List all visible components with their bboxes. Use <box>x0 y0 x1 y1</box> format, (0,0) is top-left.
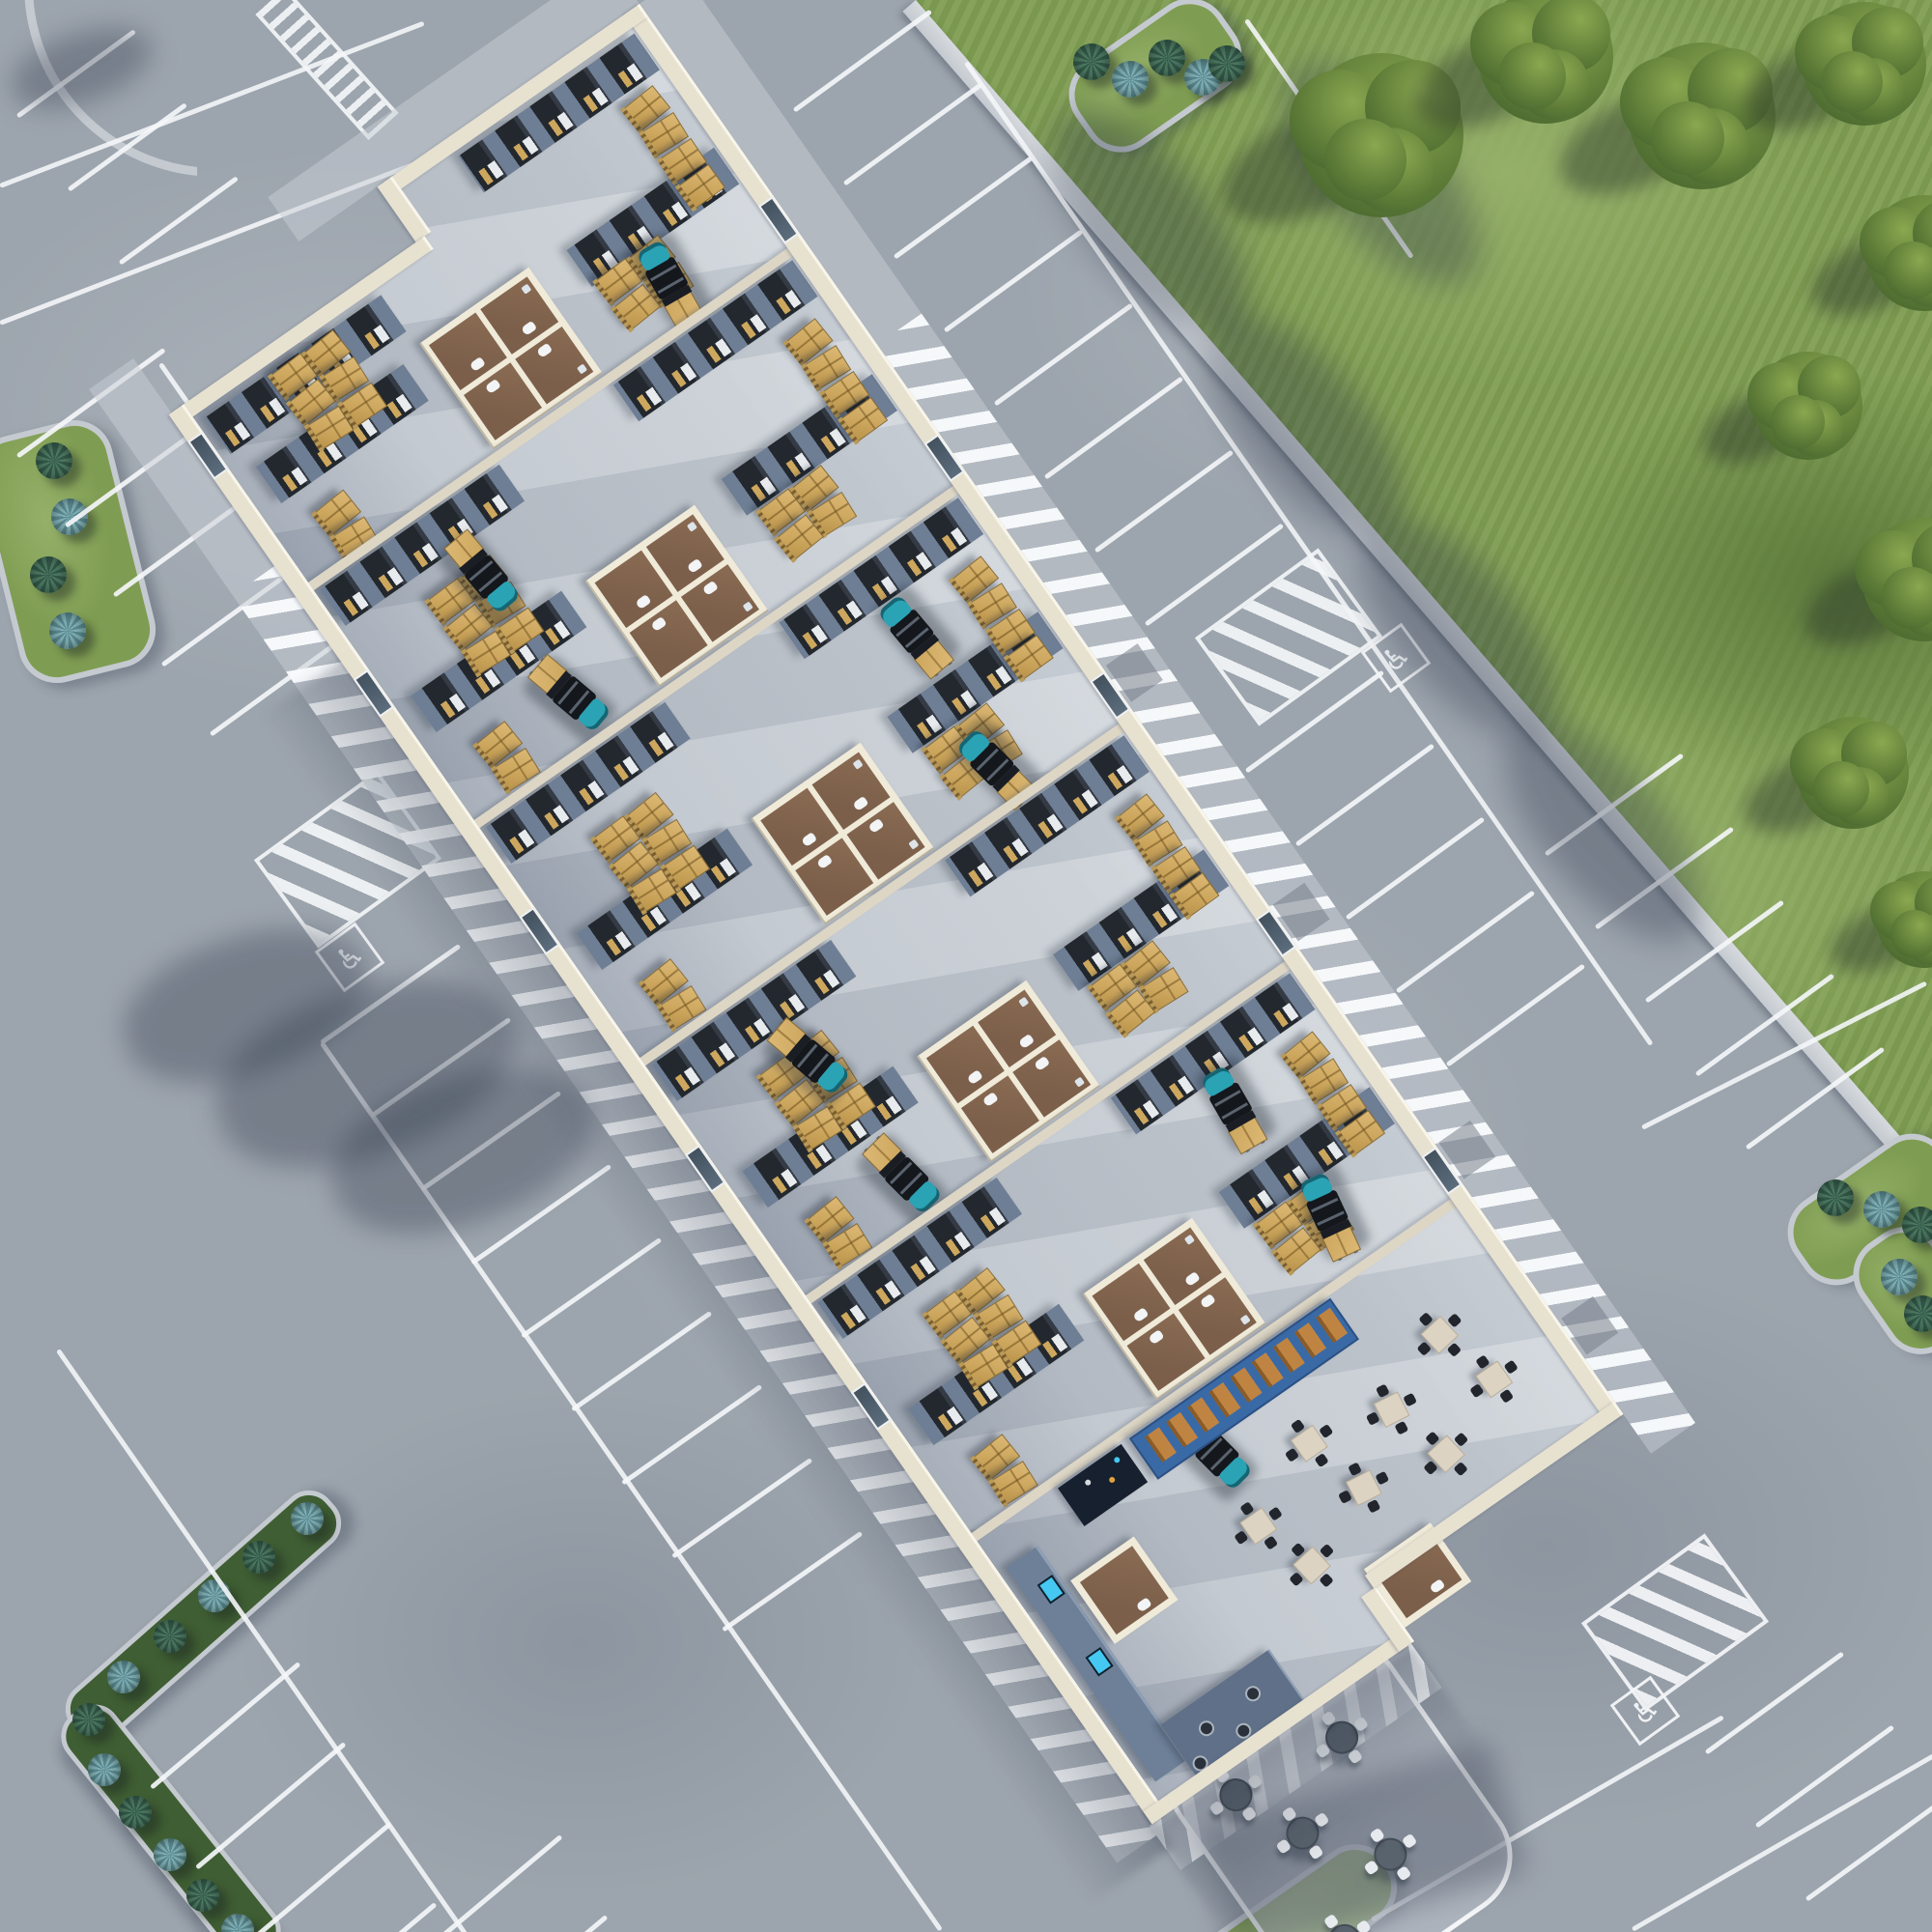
toilet <box>485 379 501 394</box>
menu-dot <box>1084 1478 1092 1486</box>
menu-dot <box>1113 1456 1121 1463</box>
toilet <box>702 581 719 596</box>
agave-plant <box>1863 1191 1900 1228</box>
sink <box>1240 1315 1251 1325</box>
toilet <box>687 558 703 574</box>
tree <box>1862 518 1932 641</box>
sink <box>577 363 587 374</box>
cafe-table <box>1427 1435 1465 1473</box>
agave-plant <box>88 1753 121 1786</box>
palm-plant <box>30 556 67 593</box>
palm-plant <box>1902 1207 1932 1243</box>
crate-seam <box>455 539 472 559</box>
cafe-table <box>1421 1316 1460 1354</box>
cafe-table <box>1293 1547 1331 1585</box>
toilet <box>1200 1293 1216 1309</box>
agave-plant <box>154 1838 186 1871</box>
palm-plant <box>186 1879 219 1912</box>
agave-plant <box>51 498 88 535</box>
toilet <box>1136 1597 1152 1612</box>
palm-plant <box>154 1620 186 1653</box>
toilet <box>635 594 651 610</box>
agave-plant <box>1112 61 1149 98</box>
sink <box>521 284 531 295</box>
toilet <box>982 1092 999 1107</box>
palm-plant <box>1208 45 1245 82</box>
toilet <box>816 854 833 869</box>
sink <box>908 839 919 850</box>
toilet <box>1018 1034 1035 1049</box>
cafe-table <box>1239 1507 1277 1545</box>
toilet <box>801 832 817 847</box>
palm-plant <box>119 1796 152 1829</box>
cafe-table <box>1475 1360 1513 1398</box>
toilet <box>469 356 486 372</box>
toilet <box>1034 1056 1050 1071</box>
toilet <box>1132 1307 1149 1322</box>
tree <box>1866 195 1932 311</box>
toilet <box>967 1069 983 1085</box>
agave-plant <box>1881 1259 1918 1295</box>
toilet <box>650 616 667 632</box>
tree-foliage <box>1821 51 1883 113</box>
tree <box>1797 717 1909 829</box>
toilet <box>1429 1578 1445 1594</box>
tree-foliage <box>1324 119 1406 201</box>
sink <box>853 759 864 770</box>
palm-plant <box>36 442 72 479</box>
agave-plant <box>49 612 86 649</box>
tree <box>1876 871 1932 968</box>
agave-plant <box>107 1661 140 1693</box>
crate-seam <box>537 666 557 683</box>
palm-plant <box>242 1541 275 1574</box>
agave-plant <box>291 1502 324 1535</box>
toilet <box>536 343 553 358</box>
patio-table <box>1368 1832 1413 1877</box>
sink <box>1074 1077 1085 1088</box>
tree <box>1803 2 1926 126</box>
toilet <box>1184 1271 1201 1287</box>
tree <box>1754 352 1862 460</box>
crate-seam <box>925 649 943 669</box>
tree-foliage <box>1890 910 1932 958</box>
tree-foliage <box>1771 395 1825 449</box>
crate-seam <box>1335 1232 1348 1255</box>
palm-plant <box>1817 1179 1854 1216</box>
sink <box>687 522 697 532</box>
crate-seam <box>872 1144 892 1163</box>
crate-seam <box>777 1029 797 1046</box>
tree <box>1478 0 1613 124</box>
palm-plant <box>72 1703 105 1736</box>
cooking-pot <box>1196 1718 1217 1739</box>
tree-foliage <box>1498 43 1566 110</box>
toilet <box>852 796 868 811</box>
sink <box>1018 997 1029 1008</box>
cafe-table <box>1291 1425 1328 1463</box>
sink <box>1184 1235 1195 1245</box>
palm-plant <box>1073 43 1110 80</box>
crate-seam <box>1240 1123 1255 1147</box>
toilet <box>867 818 884 834</box>
toilet <box>521 321 537 336</box>
menu-dot <box>1108 1476 1116 1484</box>
toilet <box>1148 1329 1164 1345</box>
forklift-rollbar <box>1311 1198 1338 1212</box>
aerial-warehouse-render: ♿♿♿ <box>0 0 1932 1932</box>
tree-foliage <box>1651 101 1724 175</box>
sink <box>743 601 753 611</box>
cooking-pot <box>1242 1683 1264 1704</box>
palm-plant <box>1149 40 1185 76</box>
